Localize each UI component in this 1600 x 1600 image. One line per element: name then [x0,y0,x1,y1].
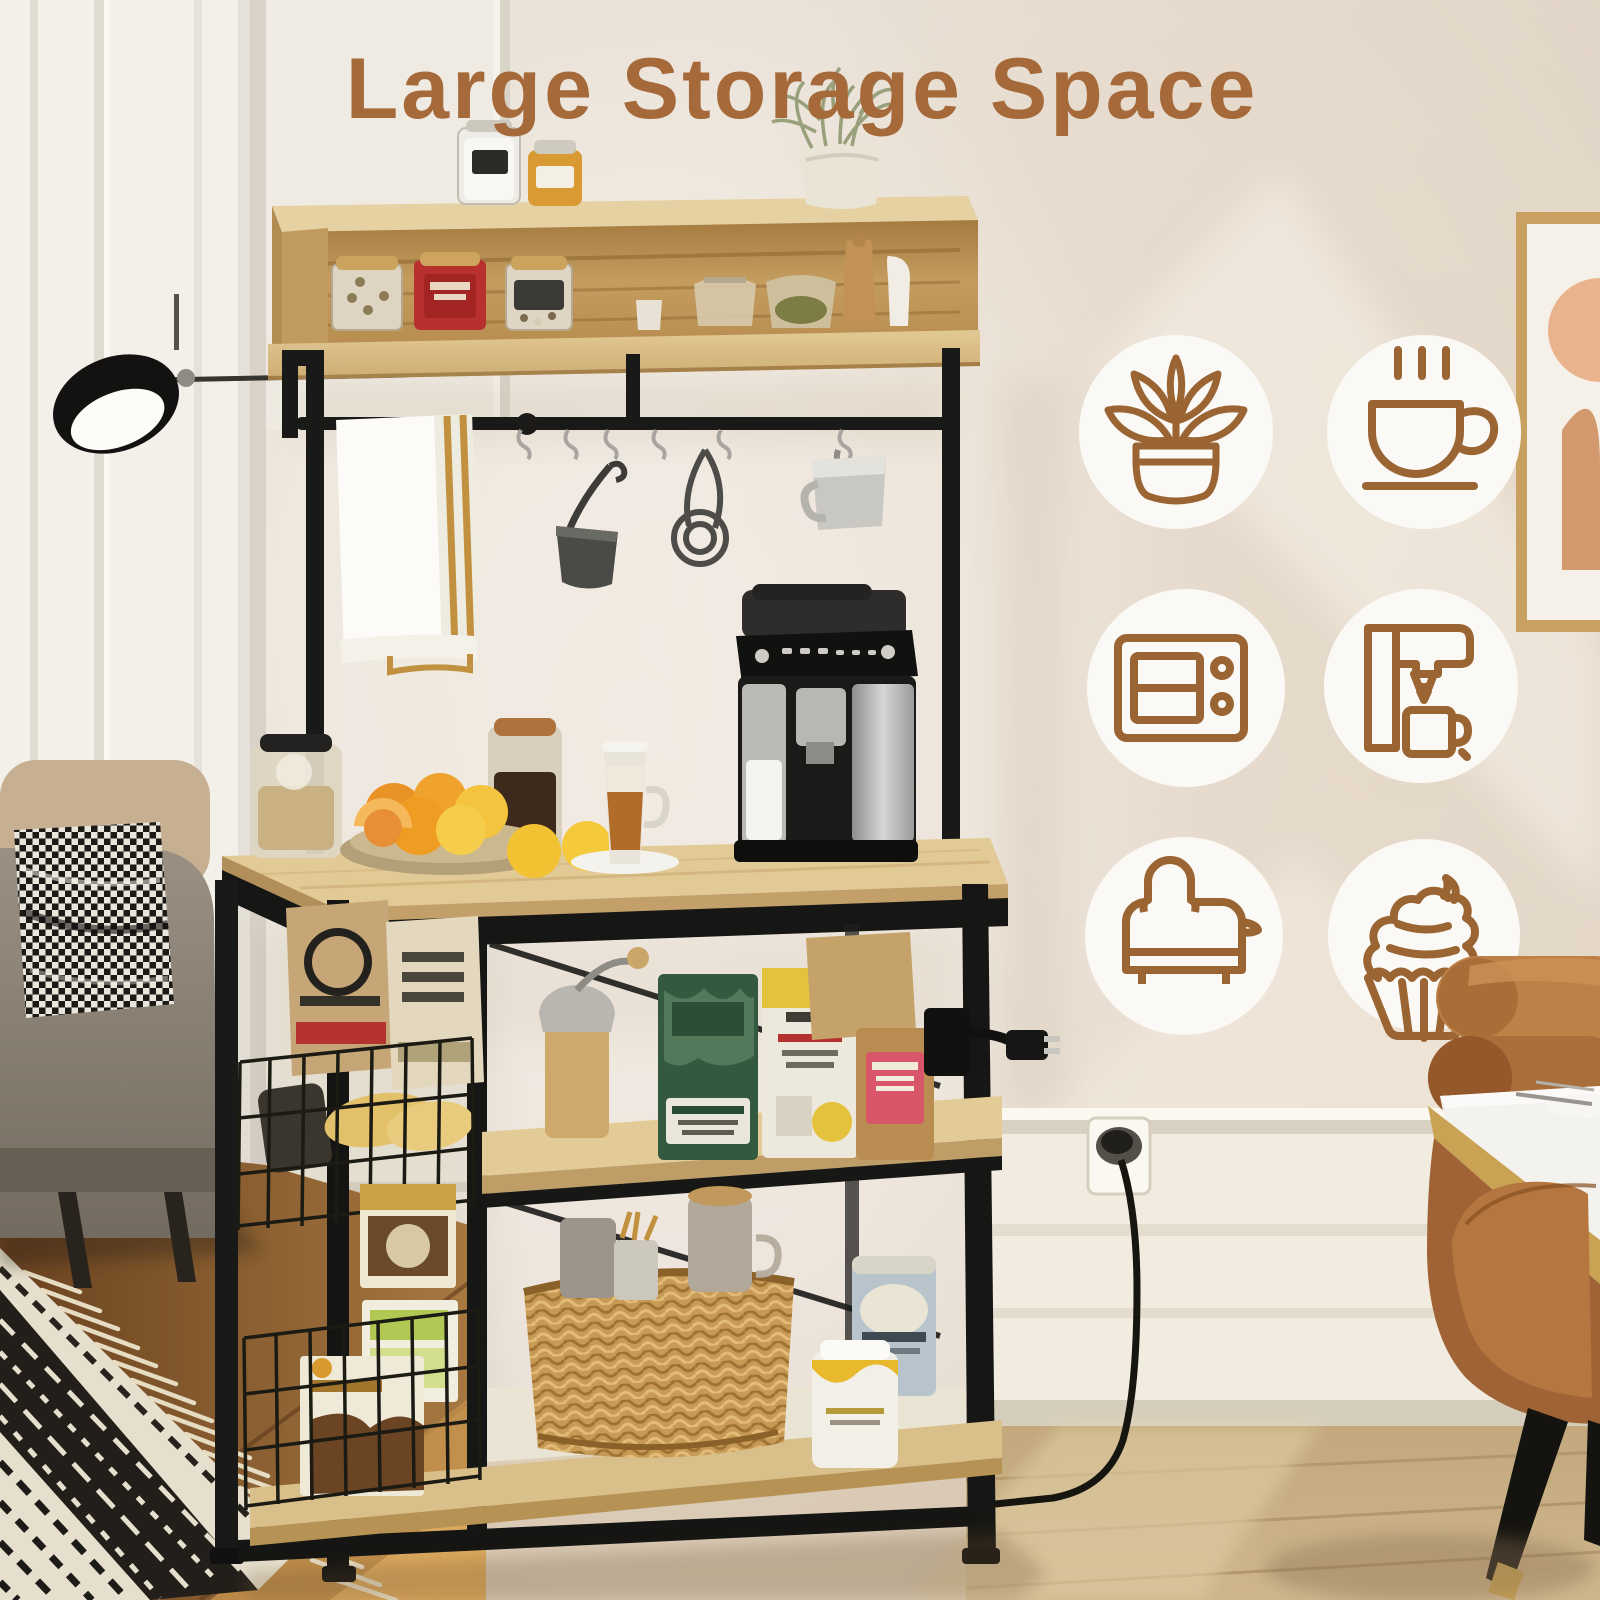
svg-text:Large Storage Space: Large Storage Space [346,41,1259,137]
